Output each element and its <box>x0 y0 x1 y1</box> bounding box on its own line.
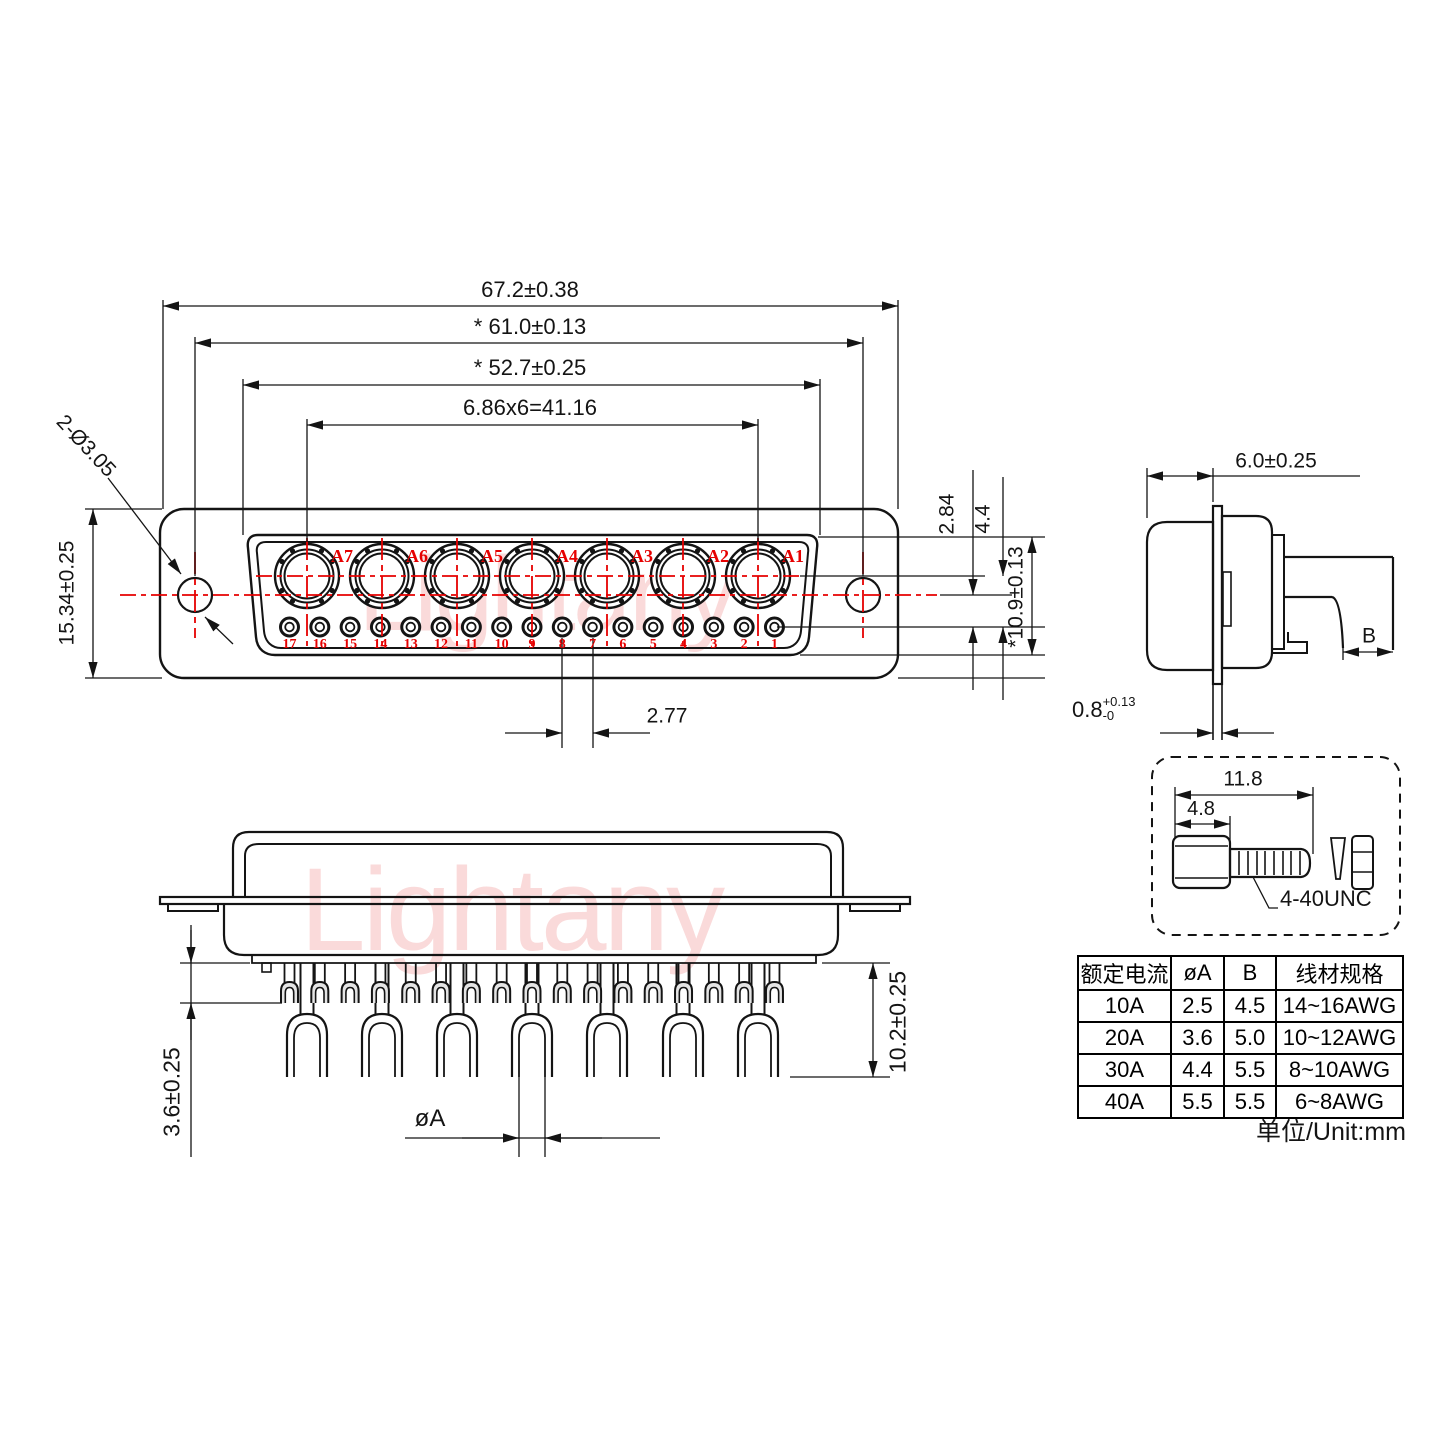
pin-number-label: 16 <box>307 638 333 652</box>
dim-cup-depth: 10.2±0.25 <box>887 971 910 1073</box>
technical-drawing-canvas: Lightany Lightany <box>0 0 1440 1440</box>
dim-flange-thickness: 0.8 +0.13 -0 <box>1072 699 1136 722</box>
coax-label: A7 <box>331 547 353 565</box>
pin-number-label: 7 <box>580 638 606 652</box>
dim-front-height: 15.34±0.25 <box>57 541 78 646</box>
dim-insulator-height: 3.6±0.25 <box>161 1047 184 1136</box>
coax-label: A4 <box>556 547 578 565</box>
spec-table-header-row: 额定电流 øA B 线材规格 <box>1078 956 1403 990</box>
coax-label: A6 <box>406 547 428 565</box>
dim-cup-bore: øA <box>415 1107 446 1131</box>
dim-screw-head-length: 4.8 <box>1187 799 1215 819</box>
col-wire-spec: 线材规格 <box>1276 956 1403 990</box>
coax-label: A3 <box>631 547 653 565</box>
drawing-linework <box>0 0 1440 1440</box>
pin-number-label: 10 <box>489 638 515 652</box>
coax-label: A1 <box>782 547 804 565</box>
dim-shell-width: * 52.7±0.25 <box>474 357 586 379</box>
pin-number-label: 13 <box>398 638 424 652</box>
dim-shell-height: *10.9±0.13 <box>1006 546 1027 647</box>
pin-number-label: 12 <box>428 638 454 652</box>
table-row: 20A 3.6 5.0 10~12AWG <box>1078 1022 1403 1054</box>
solder-cups <box>281 963 783 1077</box>
unit-note: 单位/Unit:mm <box>1180 1112 1406 1148</box>
dim-coax-pitch: 6.86x6=41.16 <box>463 397 597 419</box>
col-dia-a: øA <box>1171 956 1224 990</box>
side-view <box>1147 468 1393 740</box>
dim-overall-width: 67.2±0.38 <box>481 279 579 301</box>
dim-coax-to-pin-row: 4.4 <box>973 504 994 533</box>
col-rated-current: 额定电流 <box>1078 956 1171 990</box>
section-view <box>160 832 910 972</box>
dim-pin-pitch: 2.77 <box>647 706 688 727</box>
pin-number-label: 14 <box>367 638 393 652</box>
dim-screw-length: 11.8 <box>1223 769 1262 790</box>
coax-label: A5 <box>481 547 503 565</box>
coax-label: A2 <box>707 547 729 565</box>
pin-number-label: 8 <box>549 638 575 652</box>
table-row: 10A 2.5 4.5 14~16AWG <box>1078 990 1403 1022</box>
flange-thickness-plus: +0.13 <box>1103 695 1136 709</box>
flange-thickness-minus: -0 <box>1103 709 1136 723</box>
pin-number-label: 3 <box>701 638 727 652</box>
pin-number-label: 2 <box>731 638 757 652</box>
pin-number-label: 9 <box>519 638 545 652</box>
pin-number-label: 17 <box>277 638 303 652</box>
dim-side-depth: 6.0±0.25 <box>1235 451 1317 472</box>
flange-thickness-base: 0.8 <box>1072 699 1103 721</box>
pin-number-label: 5 <box>640 638 666 652</box>
dim-tail-width: B <box>1362 626 1376 647</box>
pin-number-label: 11 <box>458 638 484 652</box>
pin-number-label: 6 <box>610 638 636 652</box>
table-row: 30A 4.4 5.5 8~10AWG <box>1078 1054 1403 1086</box>
dim-hole-to-pin-row: 2.84 <box>937 494 958 535</box>
col-b: B <box>1224 956 1276 990</box>
pin-number-label: 1 <box>761 638 787 652</box>
spec-table: 额定电流 øA B 线材规格 10A 2.5 4.5 14~16AWG 20A … <box>1077 955 1404 1119</box>
dim-hole-span: * 61.0±0.13 <box>474 316 586 338</box>
thread-spec-label: 4-40UNC <box>1280 888 1372 910</box>
pin-number-label: 4 <box>671 638 697 652</box>
pin-number-label: 15 <box>337 638 363 652</box>
